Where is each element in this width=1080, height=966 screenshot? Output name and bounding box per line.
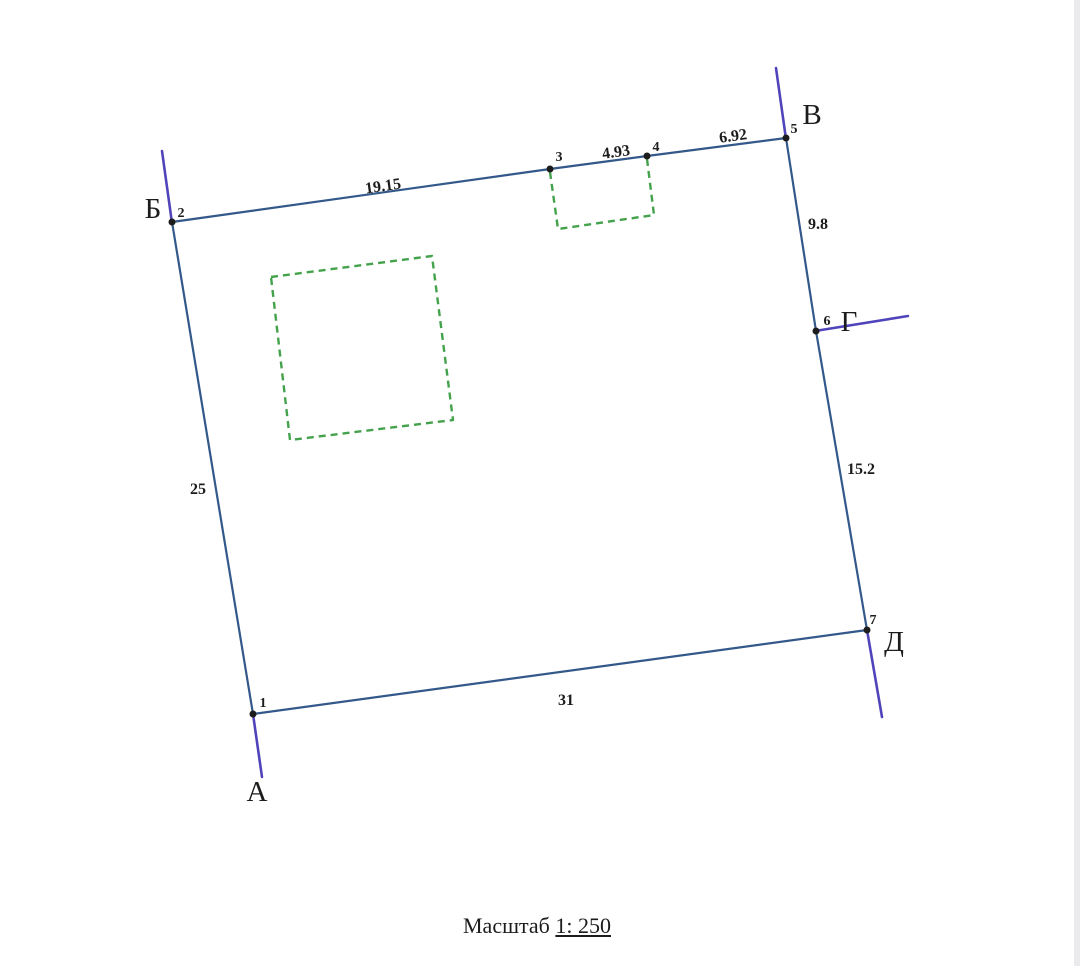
point-number-1: 1 — [260, 696, 267, 711]
survey-point-6 — [813, 328, 820, 335]
dimension-6-7: 15.2 — [847, 461, 875, 478]
point-number-7: 7 — [870, 613, 877, 628]
parcel-boundary — [172, 138, 867, 714]
point-number-3: 3 — [556, 150, 563, 165]
dimension-5-6: 9.8 — [808, 216, 828, 233]
point-number-6: 6 — [824, 314, 831, 329]
bearing-line-station-d — [867, 630, 882, 717]
station-letter-b: Б — [145, 193, 162, 225]
point-number-2: 2 — [178, 206, 185, 221]
bearing-line-station-a — [253, 714, 262, 777]
station-letter-g: Г — [841, 306, 858, 338]
point-number-5: 5 — [791, 122, 798, 137]
survey-point-3 — [547, 166, 554, 173]
building-outline-small — [550, 159, 654, 229]
survey-point-5 — [783, 135, 790, 142]
point-number-4: 4 — [653, 140, 660, 155]
scale-value: 1: 250 — [555, 913, 611, 938]
station-letter-d: Д — [884, 626, 904, 658]
survey-point-4 — [644, 153, 651, 160]
bearing-line-station-v — [776, 68, 786, 139]
dimension-1-2: 25 — [190, 481, 206, 498]
station-letter-a: А — [247, 776, 268, 808]
survey-point-2 — [169, 219, 176, 226]
survey-point-1 — [250, 711, 257, 718]
dimension-2-3: 19.15 — [364, 176, 402, 198]
dimension-1-7: 31 — [558, 692, 574, 709]
building-outline-large — [271, 256, 453, 440]
scale-label: Масштаб — [463, 913, 550, 938]
viewer-edge-strip — [1074, 0, 1080, 966]
station-letter-v: В — [802, 99, 821, 131]
survey-plan-canvas: А Б В Г Д 1 2 3 4 5 6 7 19.15 4.93 6.92 … — [0, 0, 1080, 966]
bearing-line-station-b — [162, 151, 172, 223]
scale-caption: Масштаб 1: 250 — [0, 913, 1074, 939]
